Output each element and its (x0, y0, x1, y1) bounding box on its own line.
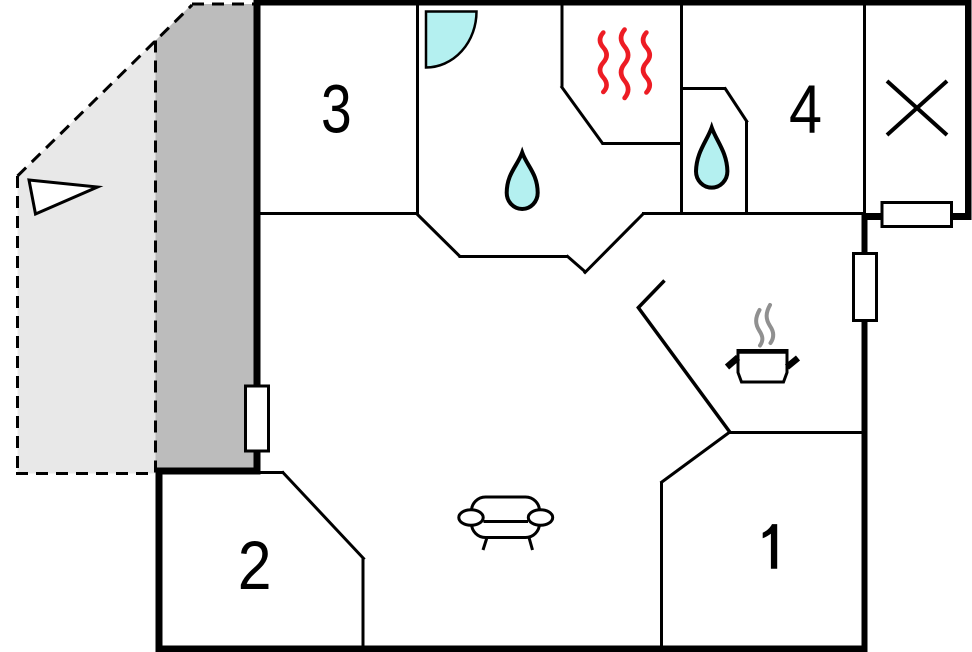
svg-text:3: 3 (321, 71, 352, 148)
svg-text:2: 2 (238, 526, 272, 604)
svg-text:4: 4 (789, 70, 822, 147)
